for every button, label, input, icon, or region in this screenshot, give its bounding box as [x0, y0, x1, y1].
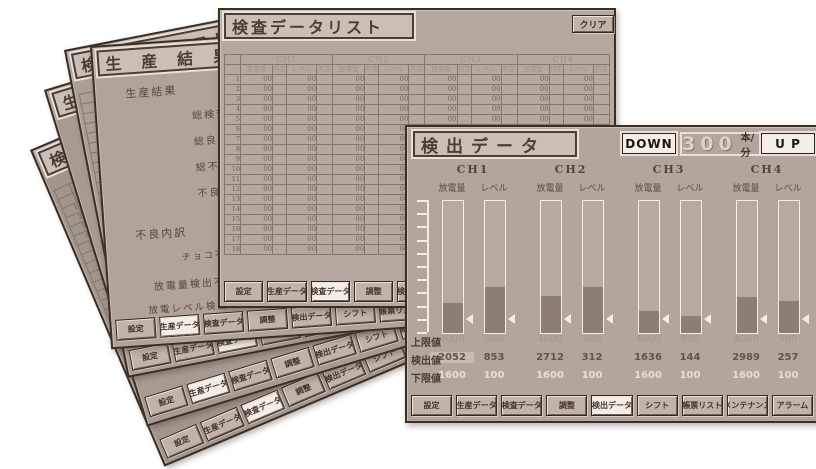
- cell-judge: [365, 205, 379, 215]
- cell-level: 00: [379, 85, 409, 95]
- cell-discharge: 00: [425, 115, 457, 125]
- nav-button[interactable]: 生産データ: [186, 373, 230, 405]
- cell-discharge: 00: [517, 105, 549, 115]
- rate-unit: 本/分: [741, 129, 760, 159]
- cell-level: 00: [379, 115, 409, 125]
- nav-button[interactable]: メンテナンス: [727, 395, 768, 416]
- cell-level: 00: [287, 235, 317, 245]
- window-title: 検査データリスト: [224, 13, 414, 39]
- cell-level: 00: [471, 105, 501, 115]
- cell-judge: [317, 155, 333, 165]
- cell-judge: [317, 115, 333, 125]
- row-number: 9: [225, 155, 241, 165]
- limit-marker-icon: [760, 314, 767, 324]
- bar-column-label: 放電量: [724, 181, 768, 194]
- cell-discharge: 00: [425, 75, 457, 85]
- cell-judge: [365, 135, 379, 145]
- cell-discharge: 00: [425, 105, 457, 115]
- bar-level-ch3: [680, 200, 702, 334]
- cell-level: 00: [563, 95, 593, 105]
- nav-button[interactable]: 設定: [115, 317, 156, 341]
- row-number: 4: [225, 105, 241, 115]
- corner-cell: [225, 65, 241, 75]
- cell-judge: [273, 155, 287, 165]
- nav-button[interactable]: 設定: [224, 281, 263, 302]
- cell-discharge: 00: [333, 155, 365, 165]
- cell-judge: [317, 145, 333, 155]
- row-number: 15: [225, 215, 241, 225]
- bar-discharge-ch3: [638, 200, 660, 334]
- cell-judge: [409, 75, 425, 85]
- sub-header: レベル: [471, 65, 501, 75]
- cell-discharge: 00: [241, 185, 273, 195]
- limit-marker-icon: [704, 314, 711, 324]
- cell-discharge: 00: [333, 215, 365, 225]
- cell-level: 00: [287, 175, 317, 185]
- cell-judge: [317, 205, 333, 215]
- cell-judge: [365, 245, 379, 255]
- scale-tick: [417, 240, 427, 242]
- value-detect: 144: [668, 352, 712, 363]
- value-upper: 900: [472, 334, 516, 345]
- cell-judge: [365, 145, 379, 155]
- cell-judge: [501, 105, 517, 115]
- limit-marker-icon: [466, 314, 473, 324]
- cell-judge: [549, 85, 563, 95]
- cell-discharge: 00: [333, 225, 365, 235]
- sub-header: 放電量: [517, 65, 549, 75]
- cell-level: 00: [287, 205, 317, 215]
- nav-button[interactable]: 検査データ: [228, 360, 272, 392]
- bar-fill: [485, 287, 505, 333]
- cell-level: 00: [379, 75, 409, 85]
- cell-judge: [317, 225, 333, 235]
- cell-judge: [409, 85, 425, 95]
- corner-cell: [225, 55, 241, 65]
- cell-discharge: 00: [241, 85, 273, 95]
- bar-fill: [681, 316, 701, 333]
- cell-level: 00: [287, 115, 317, 125]
- row-number: 11: [225, 175, 241, 185]
- window-title: 検出データ: [413, 131, 577, 157]
- sub-header: 判定: [593, 65, 609, 75]
- cell-judge: [365, 115, 379, 125]
- cell-discharge: 00: [333, 85, 365, 95]
- bar-column-label: 放電量: [430, 181, 474, 194]
- cell-judge: [365, 125, 379, 135]
- cell-level: 00: [379, 95, 409, 105]
- cell-discharge: 00: [425, 95, 457, 105]
- cell-judge: [501, 115, 517, 125]
- cell-judge: [273, 245, 287, 255]
- value-detect: 1636: [626, 352, 670, 363]
- limit-marker-icon: [662, 314, 669, 324]
- cell-discharge: 00: [241, 105, 273, 115]
- bar-column-label: レベル: [570, 181, 614, 194]
- nav-button[interactable]: 生産データ: [159, 314, 200, 338]
- table-row: 40000000000000000: [225, 105, 610, 115]
- cell-judge: [593, 85, 609, 95]
- cell-discharge: 00: [333, 75, 365, 85]
- cell-judge: [317, 105, 333, 115]
- cell-level: 00: [287, 85, 317, 95]
- scale-tick: [417, 292, 427, 294]
- cell-level: 00: [287, 185, 317, 195]
- cell-judge: [549, 95, 563, 105]
- table-row: 50000000000000000: [225, 115, 610, 125]
- cell-judge: [409, 105, 425, 115]
- cell-judge: [457, 85, 471, 95]
- cell-judge: [317, 195, 333, 205]
- cell-judge: [273, 165, 287, 175]
- value-lower: 100: [570, 370, 614, 381]
- cell-discharge: 00: [241, 215, 273, 225]
- cell-judge: [273, 235, 287, 245]
- row-label-lower: 下限値: [411, 370, 441, 385]
- cell-judge: [317, 85, 333, 95]
- cell-judge: [273, 185, 287, 195]
- value-lower: 1600: [724, 370, 768, 381]
- cell-judge: [593, 105, 609, 115]
- rate-value: 300: [682, 133, 737, 155]
- cell-judge: [501, 95, 517, 105]
- row-label-detect: 検出値: [411, 352, 441, 367]
- cell-level: 00: [287, 125, 317, 135]
- scale-tick: [417, 200, 427, 202]
- cell-discharge: 00: [425, 85, 457, 95]
- cell-level: 00: [563, 75, 593, 85]
- cell-level: 00: [287, 145, 317, 155]
- bar-column-label: レベル: [472, 181, 516, 194]
- bar-discharge-ch4: [736, 200, 758, 334]
- limit-marker-icon: [802, 314, 809, 324]
- channel-header: CH4: [517, 55, 609, 65]
- sub-header: レベル: [287, 65, 317, 75]
- cell-discharge: 00: [333, 115, 365, 125]
- cell-level: 00: [287, 155, 317, 165]
- nav-button[interactable]: 調整: [247, 308, 288, 332]
- bar-discharge-ch2: [540, 200, 562, 334]
- cell-judge: [273, 95, 287, 105]
- row-number: 6: [225, 125, 241, 135]
- cell-judge: [317, 125, 333, 135]
- sub-header: 判定: [409, 65, 425, 75]
- cell-judge: [273, 125, 287, 135]
- cell-discharge: 00: [241, 145, 273, 155]
- value-upper: 4000: [724, 334, 768, 345]
- cell-discharge: 00: [241, 75, 273, 85]
- value-detect: 853: [472, 352, 516, 363]
- cell-level: 00: [287, 215, 317, 225]
- cell-judge: [365, 225, 379, 235]
- value-upper: 4000: [528, 334, 572, 345]
- cell-judge: [273, 145, 287, 155]
- scale-axis: [427, 200, 429, 332]
- cell-judge: [365, 105, 379, 115]
- bar-level-ch4: [778, 200, 800, 334]
- nav-button[interactable]: 検出データ: [291, 305, 332, 329]
- value-upper: 4000: [626, 334, 670, 345]
- cell-judge: [273, 105, 287, 115]
- row-label-upper: 上限値: [411, 334, 441, 349]
- cell-level: 00: [287, 245, 317, 255]
- channel-label: CH2: [541, 163, 601, 176]
- cell-judge: [317, 95, 333, 105]
- cell-discharge: 00: [333, 105, 365, 115]
- cell-judge: [365, 185, 379, 195]
- cell-discharge: 00: [241, 95, 273, 105]
- cell-judge: [365, 155, 379, 165]
- cell-discharge: 00: [241, 205, 273, 215]
- row-number: 5: [225, 115, 241, 125]
- down-button[interactable]: DOWN: [622, 133, 676, 154]
- cell-level: 00: [563, 105, 593, 115]
- cell-judge: [457, 115, 471, 125]
- nav-button[interactable]: 調整: [270, 347, 314, 379]
- cell-judge: [273, 175, 287, 185]
- cell-judge: [365, 195, 379, 205]
- cell-judge: [317, 185, 333, 195]
- bar-fill: [737, 297, 757, 333]
- cell-judge: [317, 165, 333, 175]
- production-item: 不良内訳: [135, 224, 188, 244]
- cell-level: 00: [471, 95, 501, 105]
- cell-discharge: 00: [333, 175, 365, 185]
- cell-level: 00: [287, 135, 317, 145]
- cell-discharge: 00: [241, 165, 273, 175]
- cell-discharge: 00: [517, 95, 549, 105]
- scale-tick: [417, 266, 427, 268]
- cell-level: 00: [287, 95, 317, 105]
- cell-level: 00: [471, 75, 501, 85]
- nav-button[interactable]: 検査データ: [501, 395, 542, 416]
- nav-button-row: 設定生産データ検査データ調整検出データシフト帳票リストメンテナンスアラーム: [411, 395, 813, 416]
- cell-discharge: 00: [333, 95, 365, 105]
- value-lower: 100: [766, 370, 810, 381]
- screenshot-root: { "palette": { "page_bg": "#ffffff", "wi…: [0, 0, 816, 469]
- sub-header: 放電量: [241, 65, 273, 75]
- cell-discharge: 00: [241, 135, 273, 145]
- value-lower: 1600: [528, 370, 572, 381]
- row-number: 7: [225, 135, 241, 145]
- cell-judge: [409, 115, 425, 125]
- cell-level: 00: [287, 105, 317, 115]
- value-upper: 900: [668, 334, 712, 345]
- cell-discharge: 00: [333, 205, 365, 215]
- cell-discharge: 00: [241, 225, 273, 235]
- row-number: 3: [225, 95, 241, 105]
- bar-fill: [639, 311, 659, 333]
- value-detect: 257: [766, 352, 810, 363]
- bar-column-label: レベル: [668, 181, 712, 194]
- bar-column-label: レベル: [766, 181, 810, 194]
- cell-discharge: 00: [241, 155, 273, 165]
- limit-marker-icon: [564, 314, 571, 324]
- cell-discharge: 00: [333, 145, 365, 155]
- bar-fill: [583, 287, 603, 333]
- cell-level: 00: [563, 115, 593, 125]
- cell-discharge: 00: [333, 135, 365, 145]
- up-button[interactable]: U P: [761, 133, 815, 154]
- nav-button[interactable]: 帳票リスト: [682, 395, 723, 416]
- sub-header: 判定: [273, 65, 287, 75]
- cell-judge: [365, 85, 379, 95]
- channel-label: CH1: [443, 163, 503, 176]
- screen-stack: 検査データリストクリアCH1CH2CH3CH4放電量判定レベル判定放電量判定レベ…: [0, 8, 816, 469]
- row-number: 18: [225, 245, 241, 255]
- scale-tick: [417, 279, 427, 281]
- value-detect: 312: [570, 352, 614, 363]
- nav-button[interactable]: アラーム: [772, 395, 813, 416]
- cell-judge: [273, 195, 287, 205]
- scale-tick: [417, 226, 427, 228]
- value-lower: 1600: [626, 370, 670, 381]
- cell-judge: [365, 95, 379, 105]
- cell-level: 00: [471, 85, 501, 95]
- cell-judge: [365, 175, 379, 185]
- nav-button[interactable]: 調整: [546, 395, 587, 416]
- cell-level: 00: [287, 165, 317, 175]
- cell-discharge: 00: [241, 115, 273, 125]
- sub-header: 判定: [549, 65, 563, 75]
- sub-header: 判定: [457, 65, 471, 75]
- cell-judge: [365, 165, 379, 175]
- cell-level: 00: [287, 195, 317, 205]
- value-lower: 100: [472, 370, 516, 381]
- cell-discharge: 00: [333, 245, 365, 255]
- bar-level-ch1: [484, 200, 506, 334]
- value-upper: 900: [766, 334, 810, 345]
- scale-tick: [417, 253, 427, 255]
- cell-discharge: 00: [517, 85, 549, 95]
- cell-discharge: 00: [241, 175, 273, 185]
- row-number: 13: [225, 195, 241, 205]
- nav-button[interactable]: 検査データ: [203, 311, 244, 335]
- cell-discharge: 00: [517, 75, 549, 85]
- cell-judge: [365, 235, 379, 245]
- bar-fill: [779, 301, 799, 333]
- nav-button[interactable]: 調整: [354, 281, 393, 302]
- cell-judge: [501, 75, 517, 85]
- sub-header: 放電量: [333, 65, 365, 75]
- cell-discharge: 00: [333, 125, 365, 135]
- production-item: 生産結果: [125, 82, 178, 102]
- cell-judge: [273, 225, 287, 235]
- nav-button[interactable]: 設定: [411, 395, 452, 416]
- sub-header: 放電量: [425, 65, 457, 75]
- nav-button[interactable]: 設定: [144, 385, 188, 417]
- value-upper: 900: [570, 334, 614, 345]
- sub-header: 判定: [501, 65, 517, 75]
- cell-judge: [457, 75, 471, 85]
- cell-judge: [457, 95, 471, 105]
- cell-discharge: 00: [517, 115, 549, 125]
- cell-discharge: 00: [241, 235, 273, 245]
- scale-tick: [417, 306, 427, 308]
- clear-button[interactable]: クリア: [572, 15, 614, 33]
- cell-level: 00: [287, 225, 317, 235]
- value-lower: 100: [668, 370, 712, 381]
- nav-button[interactable]: 検査データ: [311, 281, 350, 302]
- scale-tick: [417, 213, 427, 215]
- row-number: 14: [225, 205, 241, 215]
- nav-button[interactable]: 生産データ: [456, 395, 497, 416]
- cell-judge: [365, 75, 379, 85]
- cell-judge: [273, 115, 287, 125]
- bar-column-label: 放電量: [626, 181, 670, 194]
- sub-header: 判定: [365, 65, 379, 75]
- cell-discharge: 00: [241, 125, 273, 135]
- cell-discharge: 00: [241, 245, 273, 255]
- limit-marker-icon: [508, 314, 515, 324]
- rate-display: 300本/分: [680, 132, 762, 156]
- bar-discharge-ch1: [442, 200, 464, 334]
- channel-header: CH3: [425, 55, 517, 65]
- row-number: 8: [225, 145, 241, 155]
- cell-judge: [593, 115, 609, 125]
- nav-button[interactable]: 設定: [159, 424, 204, 459]
- row-number: 2: [225, 85, 241, 95]
- nav-button[interactable]: 生産データ: [267, 281, 306, 302]
- nav-button[interactable]: シフト: [637, 395, 678, 416]
- cell-judge: [409, 95, 425, 105]
- cell-judge: [317, 75, 333, 85]
- row-number: 1: [225, 75, 241, 85]
- row-number: 12: [225, 185, 241, 195]
- cell-judge: [273, 215, 287, 225]
- nav-button[interactable]: 生産データ: [200, 407, 245, 442]
- cell-level: 00: [379, 105, 409, 115]
- cell-judge: [593, 75, 609, 85]
- cell-judge: [457, 105, 471, 115]
- window-detect-data: 検出データDOWN300本/分U PCH1放電量400020521600レベル9…: [405, 125, 816, 423]
- cell-judge: [365, 215, 379, 225]
- value-detect: 2989: [724, 352, 768, 363]
- bar-fill: [443, 303, 463, 333]
- nav-button[interactable]: 検出データ: [591, 395, 632, 416]
- cell-judge: [317, 215, 333, 225]
- cell-judge: [317, 235, 333, 245]
- cell-level: 00: [287, 75, 317, 85]
- cell-discharge: 00: [333, 165, 365, 175]
- limit-marker-icon: [606, 314, 613, 324]
- row-number: 10: [225, 165, 241, 175]
- cell-judge: [549, 75, 563, 85]
- channel-header: CH1: [241, 55, 333, 65]
- sub-header: レベル: [563, 65, 593, 75]
- channel-header: CH2: [333, 55, 425, 65]
- bar-column-label: 放電量: [528, 181, 572, 194]
- table-row: 10000000000000000: [225, 75, 610, 85]
- cell-judge: [317, 135, 333, 145]
- bar-level-ch2: [582, 200, 604, 334]
- sub-header: レベル: [379, 65, 409, 75]
- table-row: 30000000000000000: [225, 95, 610, 105]
- sub-header: 判定: [317, 65, 333, 75]
- channel-label: CH4: [737, 163, 797, 176]
- cell-discharge: 00: [333, 235, 365, 245]
- cell-judge: [273, 135, 287, 145]
- cell-judge: [273, 85, 287, 95]
- bar-fill: [541, 296, 561, 333]
- cell-level: 00: [563, 85, 593, 95]
- cell-judge: [317, 245, 333, 255]
- cell-judge: [549, 105, 563, 115]
- cell-judge: [273, 75, 287, 85]
- cell-discharge: 00: [241, 195, 273, 205]
- cell-discharge: 00: [333, 195, 365, 205]
- channel-label: CH3: [639, 163, 699, 176]
